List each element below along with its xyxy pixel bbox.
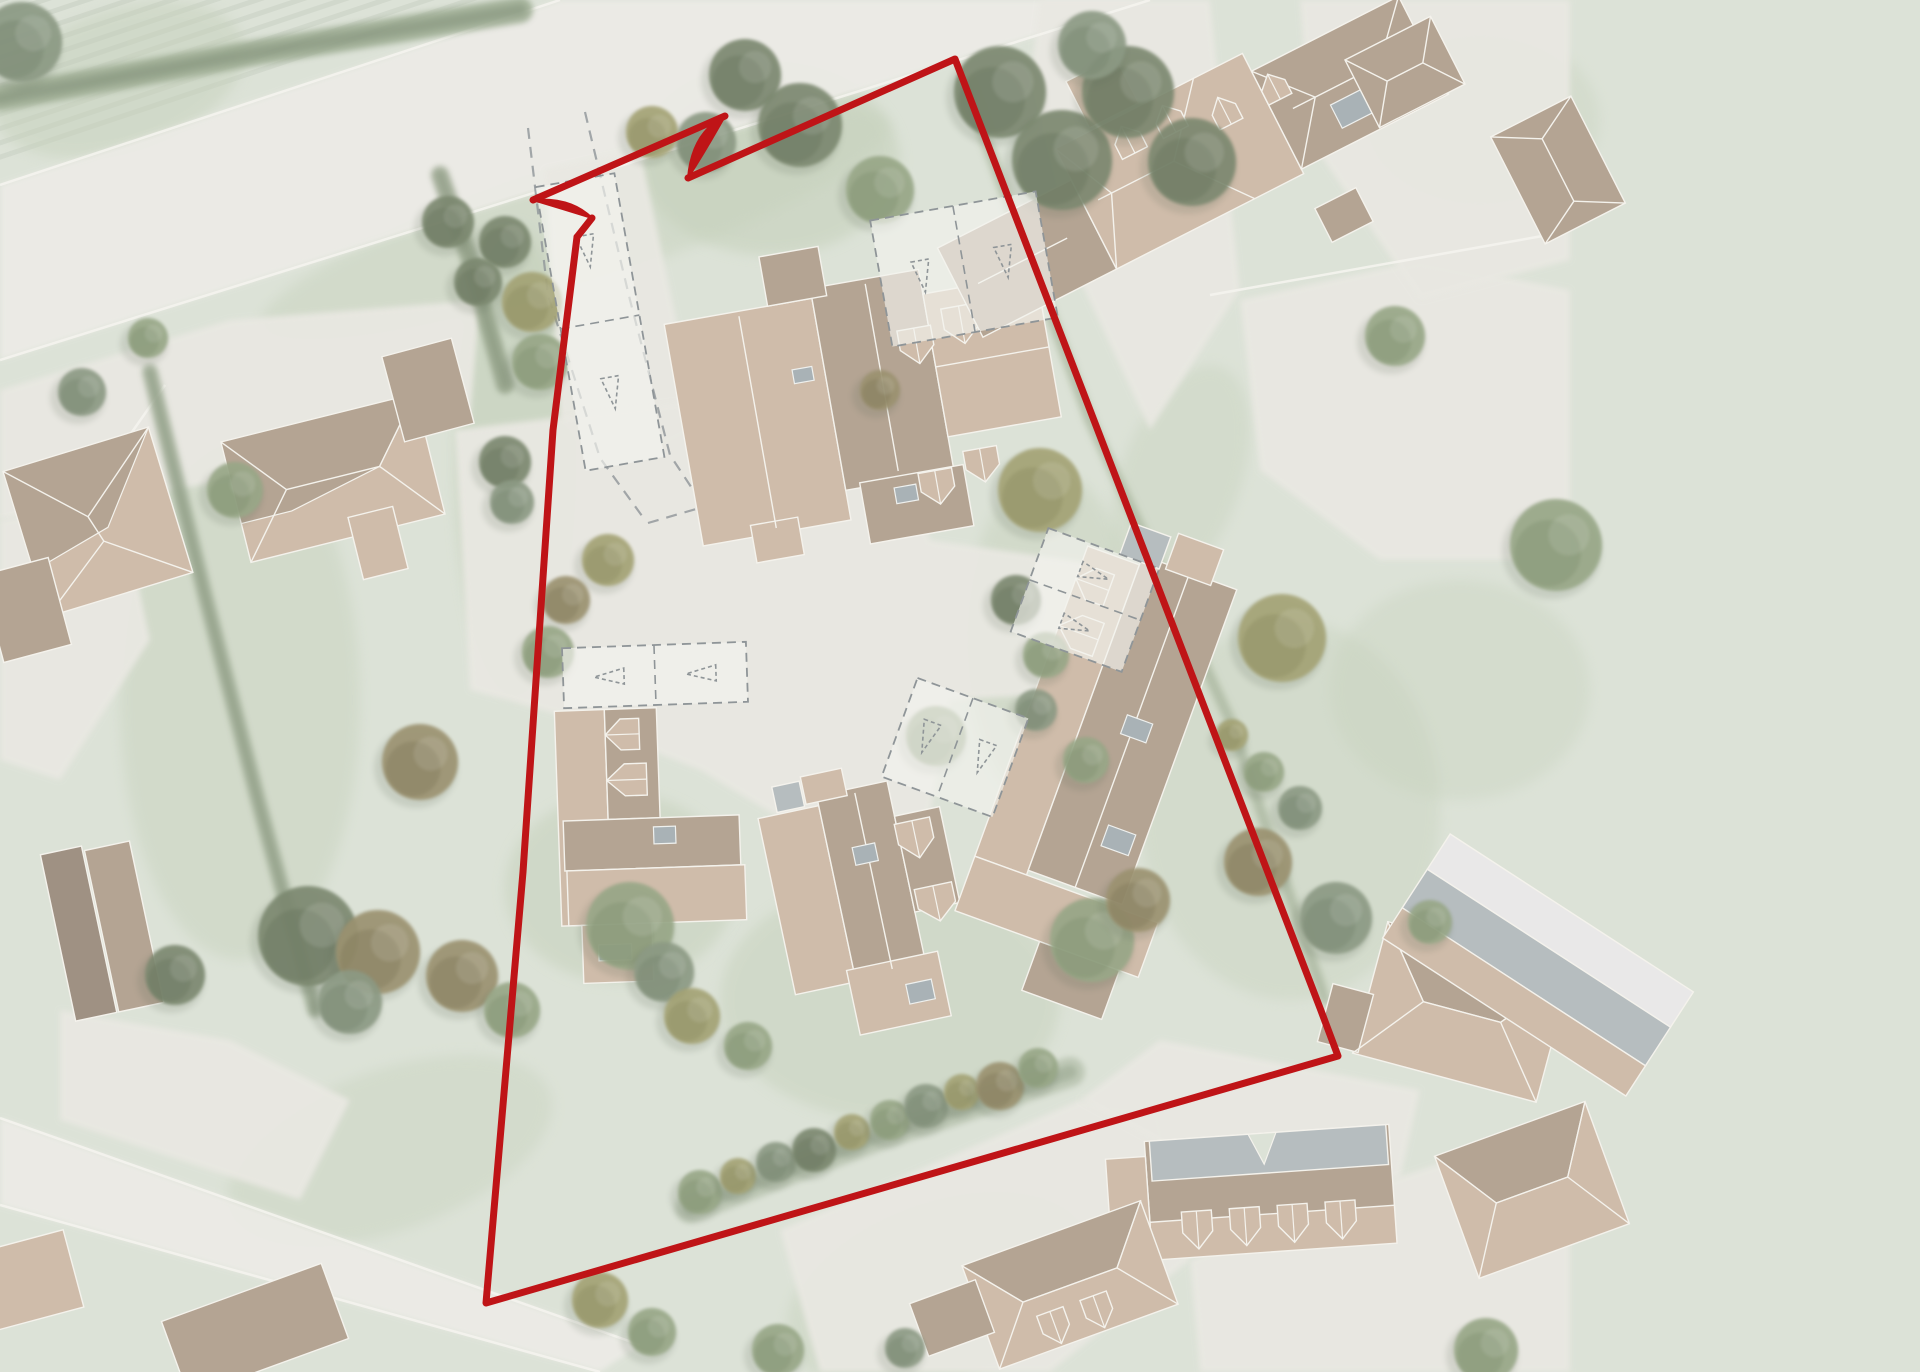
roof-part — [759, 246, 827, 306]
skylight — [792, 366, 814, 383]
site-plan-drawing — [0, 0, 1920, 1372]
parking-west-house-bays — [562, 642, 748, 708]
skylight — [894, 484, 918, 504]
roof-part — [750, 517, 804, 563]
site-plan-page — [0, 0, 1920, 1372]
roof-part — [563, 815, 741, 871]
grass-patch — [1330, 580, 1590, 800]
roof-part — [772, 781, 805, 812]
skylight — [852, 843, 878, 865]
skylight — [653, 826, 676, 844]
